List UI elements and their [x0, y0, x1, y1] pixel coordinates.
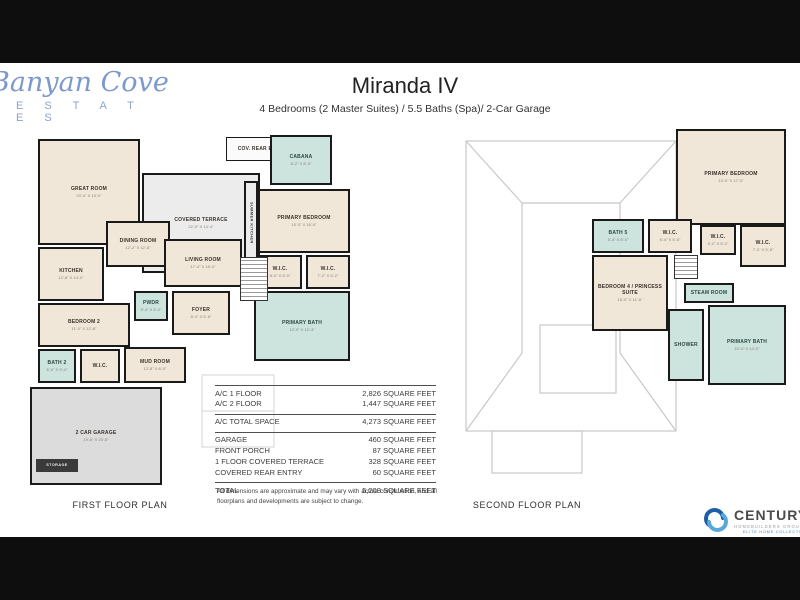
room-bedroom-4-princess-suite: BEDROOM 4 / PRINCESS SUITE16'-0" X 11'-6… [592, 255, 668, 331]
page-title: Miranda IV [0, 73, 800, 99]
room-label: PRIMARY BATH [282, 320, 322, 326]
square-footage-table: A/C 1 FLOOR2,826 SQUARE FEETA/C 2 FLOOR1… [215, 385, 436, 500]
room-foyer: FOYER8'-4" X 5'-8" [172, 291, 230, 335]
room-label: SUMMER KITCHEN [249, 202, 254, 244]
room-label: PRIMARY BATH [727, 339, 767, 345]
room-label: BEDROOM 4 / PRINCESS SUITE [594, 284, 666, 296]
room-bedroom-2: BEDROOM 211'-0" X 12'-8" [38, 303, 130, 347]
stairs [674, 255, 698, 279]
room-dims: 7'-2" X 5'-2" [318, 273, 339, 278]
room-storage: STORAGE [36, 459, 78, 472]
area-row-value: 4,273 SQUARE FEET [362, 417, 436, 428]
century-homebuilders-logo: CENTURY HOMEBUILDERS GROUP ELITE HOME CO… [702, 506, 800, 534]
room-mud-room: MUD ROOM12'-8" X 6'-0" [124, 347, 186, 383]
room-dims: 6'-4" X 5'-8" [660, 237, 681, 242]
area-row-a-c-total-space: A/C TOTAL SPACE4,273 SQUARE FEET [215, 417, 436, 428]
room-bath-5: BATH 55'-4" X 8'-0" [592, 219, 644, 253]
room-w-i-c: W.I.C.6'-4" X 5'-8" [648, 219, 692, 253]
room-label: BATH 5 [609, 230, 628, 236]
room-shower: SHOWER [668, 309, 704, 381]
room-label: STEAM ROOM [691, 290, 727, 296]
century-swirl-icon [702, 506, 730, 534]
room-label: W.I.C. [321, 266, 336, 272]
century-logo-text: CENTURY HOMEBUILDERS GROUP ELITE HOME CO… [734, 507, 800, 534]
room-label: MUD ROOM [140, 359, 170, 365]
room-primary-bath: PRIMARY BATH12'-0" X 12'-4" [254, 291, 350, 361]
floorplan-slide: Banyan Cove E S T A T E S Miranda IV 4 B… [0, 63, 800, 537]
area-row-label: A/C TOTAL SPACE [215, 417, 280, 428]
area-row-label: COVERED REAR ENTRY [215, 468, 302, 479]
room-primary-bedroom: PRIMARY BEDROOM13'-0" X 17'-0" [676, 129, 786, 225]
area-row-value: 87 SQUARE FEET [373, 446, 436, 457]
area-row-covered-rear-entry: COVERED REAR ENTRY60 SQUARE FEET [215, 468, 436, 479]
room-bath-2: BATH 26'-0" X 9'-4" [38, 349, 76, 383]
room-label: STORAGE [46, 463, 68, 468]
area-table-group: GARAGE460 SQUARE FEETFRONT PORCH87 SQUAR… [215, 432, 436, 483]
area-row-value: 460 SQUARE FEET [368, 435, 436, 446]
room-label: W.I.C. [93, 363, 108, 369]
area-row-1-floor-covered-terrace: 1 FLOOR COVERED TERRACE328 SQUARE FEET [215, 457, 436, 468]
room-w-i-c: W.I.C.5'-2" X 5'-2" [700, 225, 736, 255]
room-label: 2 CAR GARAGE [76, 430, 117, 436]
room-dims: 22'-0" X 14'-4" [188, 224, 213, 229]
room-dims: 12'-2" X 12'-8" [125, 245, 150, 250]
second-floor-plan: PRIMARY BEDROOM13'-0" X 17'-0"W.I.C.5'-2… [452, 113, 790, 493]
room-kitchen: KITCHEN12'-8" X 14'-0" [38, 247, 104, 301]
room-w-i-c: W.I.C. [80, 349, 120, 383]
room-dims: 5'-4" X 8'-0" [608, 237, 629, 242]
room-label: BEDROOM 2 [68, 319, 100, 325]
area-row-a-c-2-floor: A/C 2 FLOOR1,447 SQUARE FEET [215, 399, 436, 410]
room-dims: 12'-8" X 14'-0" [58, 275, 83, 280]
room-primary-bath: PRIMARY BATH10'-4" X 14'-0" [708, 305, 786, 385]
room-dims: 13'-0" X 17'-0" [718, 178, 743, 183]
area-row-value: 2,826 SQUARE FEET [362, 389, 436, 400]
room-dims: 16'-0" X 11'-6" [618, 297, 643, 302]
century-tagline: ELITE HOME COLLECTION [734, 530, 800, 534]
area-table-group: A/C 1 FLOOR2,826 SQUARE FEETA/C 2 FLOOR1… [215, 385, 436, 414]
room-label: LIVING ROOM [185, 257, 221, 263]
room-label: W.I.C. [711, 234, 726, 240]
room-dims: 8'-0" X 5'-0" [270, 273, 291, 278]
room-dims: 8'-2" X 8'-0" [291, 161, 312, 166]
area-row-label: GARAGE [215, 435, 247, 446]
first-floor-caption: FIRST FLOOR PLAN [30, 500, 210, 510]
second-floor-caption: SECOND FLOOR PLAN [462, 500, 592, 510]
room-summer-kitchen: SUMMER KITCHEN [244, 181, 258, 265]
room-label: CABANA [290, 154, 313, 160]
century-subtitle: HOMEBUILDERS GROUP [734, 524, 800, 529]
area-row-garage: GARAGE460 SQUARE FEET [215, 435, 436, 446]
room-dims: 7'-0" X 5'-8" [753, 247, 774, 252]
room-label: FOYER [192, 307, 210, 313]
room-dims: 10'-4" X 14'-0" [734, 346, 759, 351]
room-label: DINING ROOM [120, 238, 157, 244]
room-cabana: CABANA8'-2" X 8'-0" [270, 135, 332, 185]
room-label: GREAT ROOM [71, 186, 107, 192]
stairs [240, 257, 268, 301]
room-w-i-c: W.I.C.7'-0" X 5'-8" [740, 225, 786, 267]
area-table-group: A/C TOTAL SPACE4,273 SQUARE FEET [215, 414, 436, 432]
room-label: W.I.C. [273, 266, 288, 272]
room-dims: 19'-8" X 20'-8" [83, 437, 108, 442]
room-dims: 12'-8" X 6'-0" [143, 366, 166, 371]
room-label: SHOWER [674, 342, 698, 348]
room-label: PRIMARY BEDROOM [704, 171, 757, 177]
room-dims: 11'-0" X 12'-8" [72, 326, 97, 331]
century-name: CENTURY [734, 507, 800, 523]
room-dims: 20'-0" X 19'-0" [76, 193, 101, 198]
area-row-value: 1,447 SQUARE FEET [362, 399, 436, 410]
room-dining-room: DINING ROOM12'-2" X 12'-8" [106, 221, 170, 267]
room-steam-room: STEAM ROOM [684, 283, 734, 303]
area-row-label: A/C 2 FLOOR [215, 399, 262, 410]
room-w-i-c: W.I.C.7'-2" X 5'-2" [306, 255, 350, 289]
room-label: COVERED TERRACE [174, 217, 227, 223]
room-label: W.I.C. [756, 240, 771, 246]
disclaimer-text: All dimensions are approximate and may v… [217, 487, 445, 506]
room-living-room: LIVING ROOM17'-4" X 18'-0" [164, 239, 242, 287]
room-primary-bedroom: PRIMARY BEDROOM15'-0" X 16'-0" [258, 189, 350, 253]
room-dims: 8'-4" X 5'-8" [191, 314, 212, 319]
area-row-label: FRONT PORCH [215, 446, 270, 457]
room-dims: 5'-4" X 5'-0" [141, 307, 162, 312]
room-label: BATH 2 [48, 360, 67, 366]
area-row-label: A/C 1 FLOOR [215, 389, 262, 400]
area-row-a-c-1-floor: A/C 1 FLOOR2,826 SQUARE FEET [215, 389, 436, 400]
area-row-label: 1 FLOOR COVERED TERRACE [215, 457, 324, 468]
room-label: PRIMARY BEDROOM [277, 215, 330, 221]
room-dims: 17'-4" X 18'-0" [190, 264, 215, 269]
area-row-value: 328 SQUARE FEET [368, 457, 436, 468]
letterboxed-page: Banyan Cove E S T A T E S Miranda IV 4 B… [0, 0, 800, 600]
room-label: W.I.C. [663, 230, 678, 236]
area-row-front-porch: FRONT PORCH87 SQUARE FEET [215, 446, 436, 457]
room-dims: 15'-0" X 16'-0" [291, 222, 316, 227]
room-label: KITCHEN [59, 268, 83, 274]
room-dims: 5'-2" X 5'-2" [708, 241, 729, 246]
room-label: PWDR [143, 300, 159, 306]
room-pwdr: PWDR5'-4" X 5'-0" [134, 291, 168, 321]
room-dims: 12'-0" X 12'-4" [289, 327, 314, 332]
area-row-value: 60 SQUARE FEET [373, 468, 436, 479]
room-dims: 6'-0" X 9'-4" [47, 367, 68, 372]
